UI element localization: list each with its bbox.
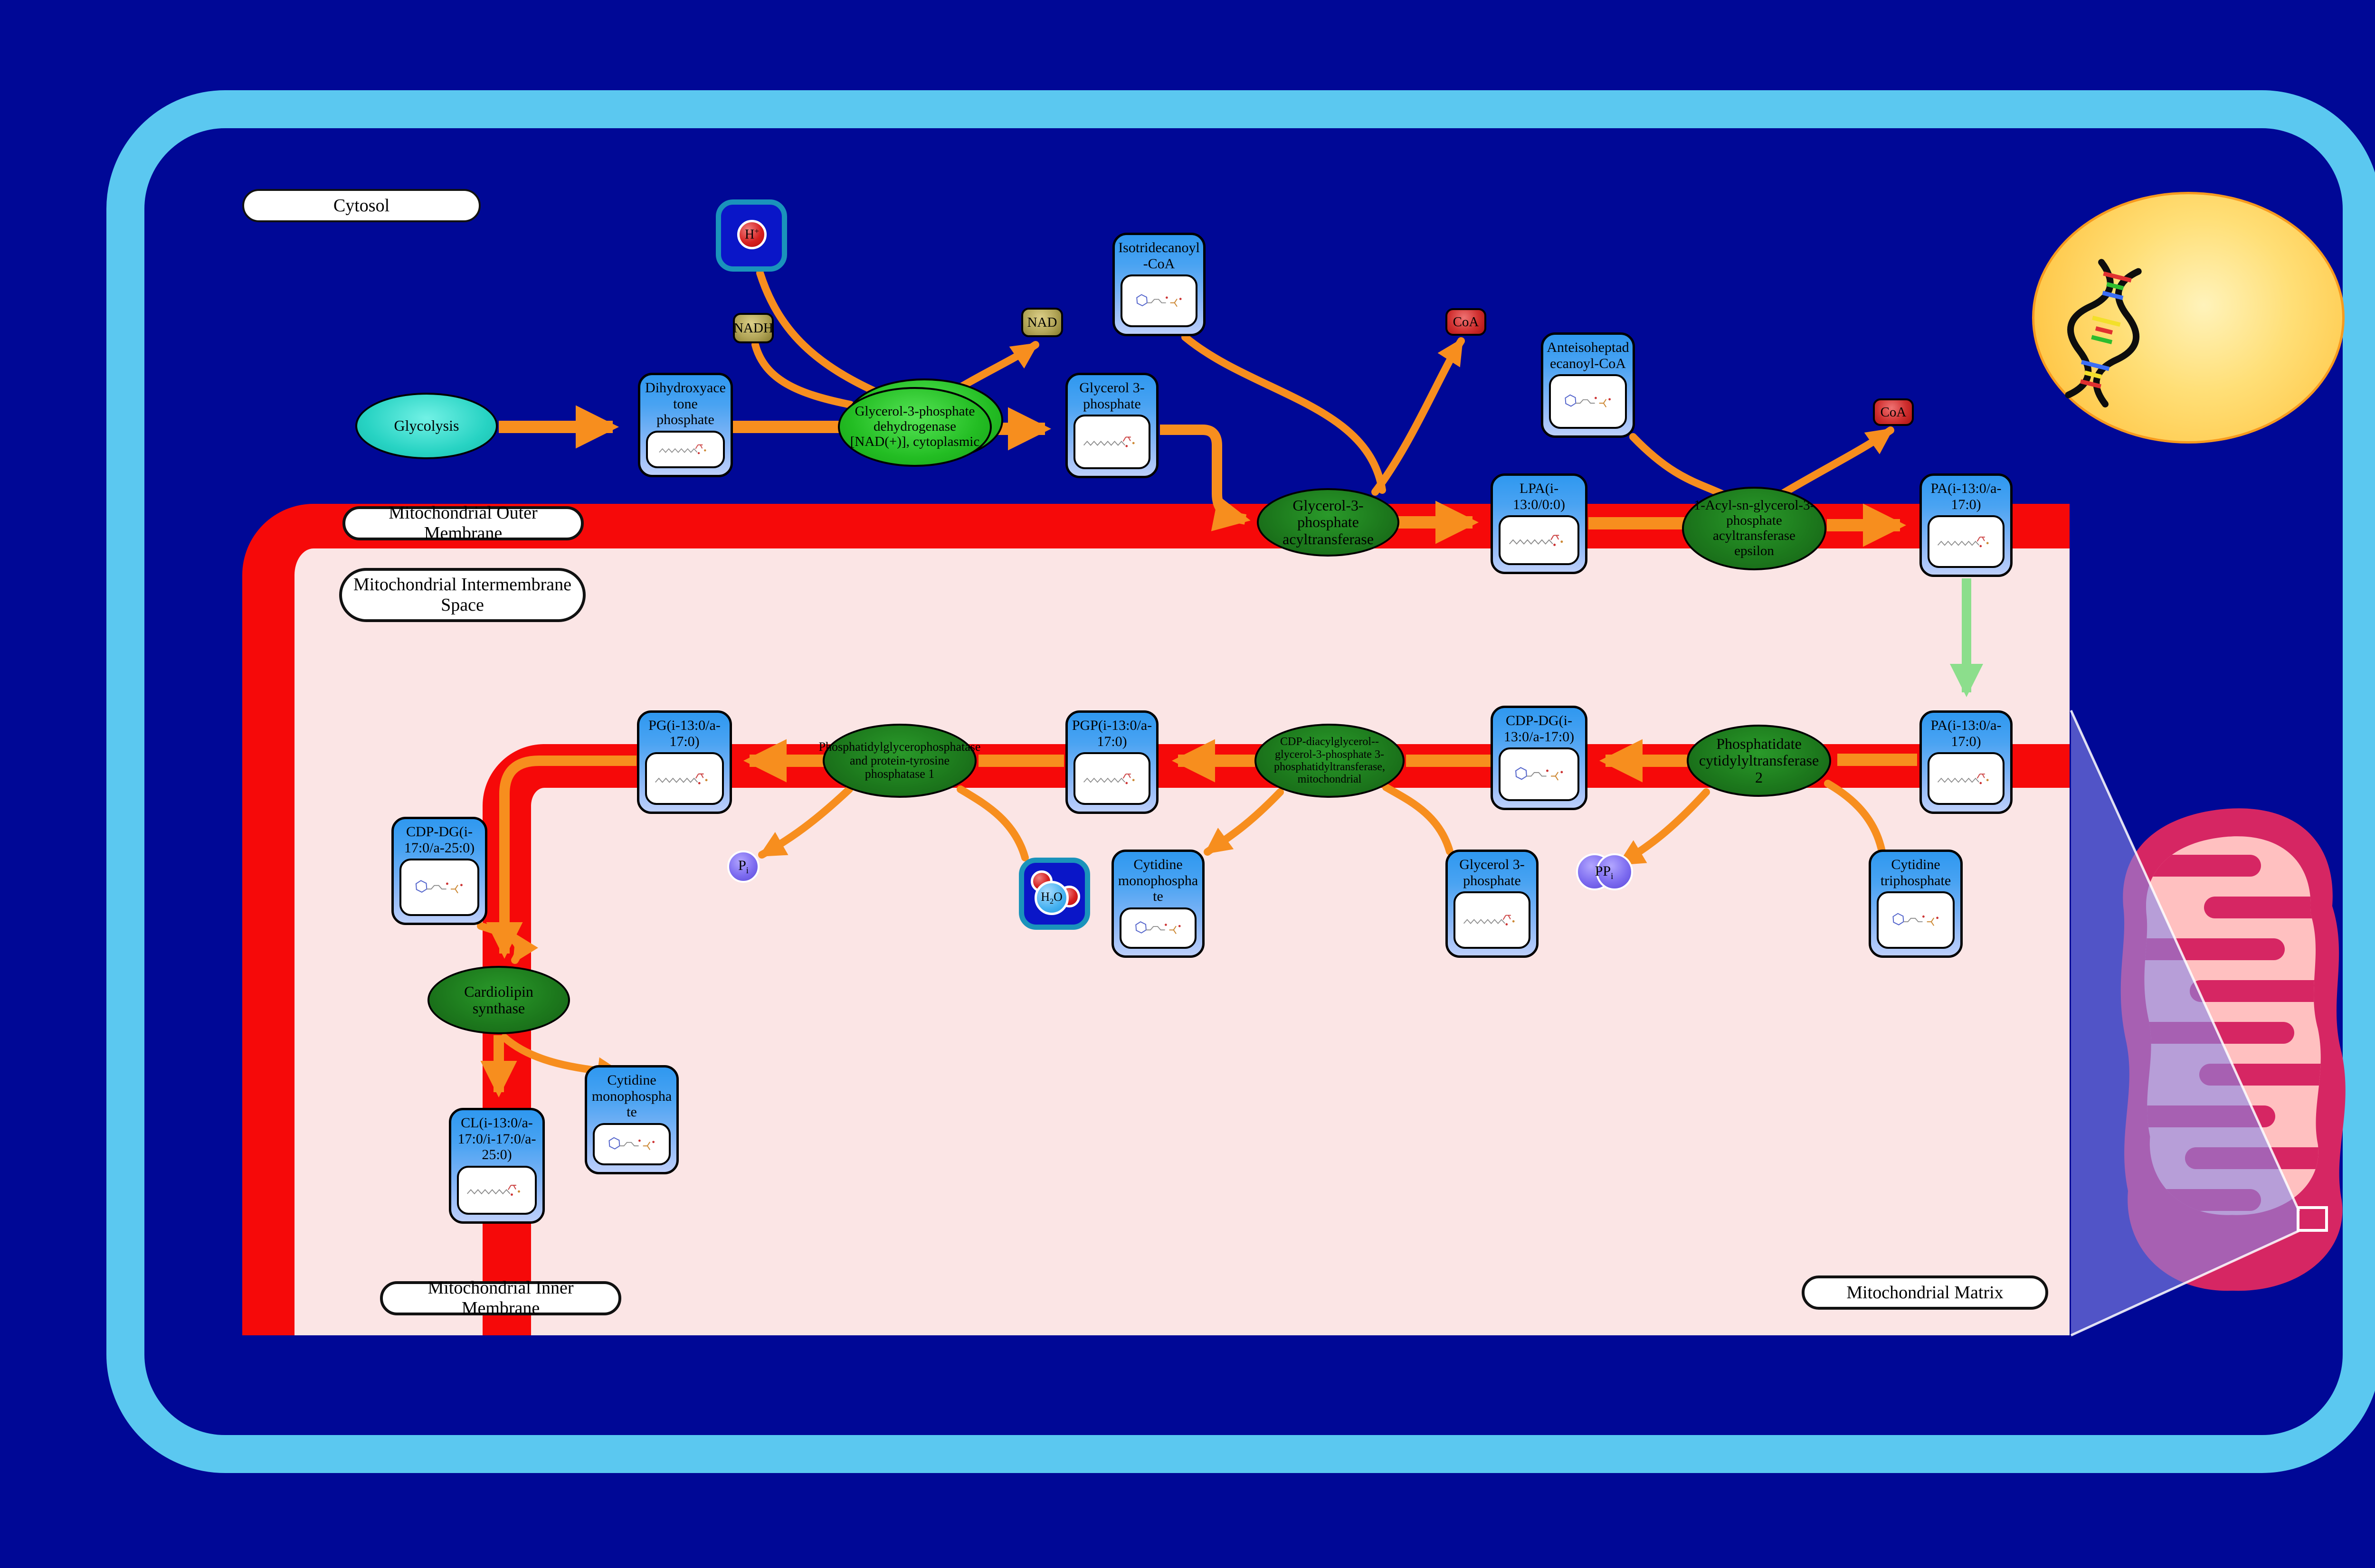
metabolite-cmp-left-structure: [593, 1123, 671, 1165]
label-matrix-text: Mitochondrial Matrix: [1846, 1283, 2003, 1303]
label-cytosol-text: Cytosol: [333, 196, 389, 216]
h-plus-sup: +: [754, 227, 759, 236]
pi-sub: i: [746, 866, 749, 876]
label-matrix: Mitochondrial Matrix: [1802, 1275, 2048, 1310]
node-glycolysis-label: Glycolysis: [394, 417, 459, 434]
metabolite-cdp-dg-left[interactable]: CDP-DG(i-17:0/a-25:0): [391, 817, 487, 925]
metabolite-cmp-mid-title: Cytidine monophosphate: [1114, 852, 1202, 907]
label-outer-membrane: Mitochondrial Outer Membrane: [342, 506, 584, 540]
cofactor-coa-2-label: CoA: [1881, 405, 1907, 420]
h2o-sub: 2: [1050, 897, 1054, 906]
cofactor-nad-label: NAD: [1027, 315, 1057, 331]
ppi-sub: i: [1611, 871, 1613, 881]
pathway-diagram: Cytosol Mitochondrial Outer Membrane Mit…: [0, 0, 2375, 1568]
enzyme-glycerol-3-phosphate-acyltransferase[interactable]: Glycerol-3-phosphate acyltransferase: [1257, 488, 1399, 557]
metabolite-pgp[interactable]: PGP(i-13:0/a-17:0): [1065, 710, 1159, 814]
metabolite-cmp-left-title: Cytidine monophosphate: [587, 1067, 676, 1122]
enzyme-gpd-label: Glycerol-3-phosphate dehydrogenase [NAD(…: [847, 404, 982, 450]
metabolite-g3p-matrix-structure: [1453, 891, 1530, 949]
metabolite-cmp-left[interactable]: Cytidine monophosphate: [585, 1065, 679, 1174]
metabolite-pa-inner-title: PA(i-13:0/a-17:0): [1922, 713, 2010, 751]
ppi-base: PP: [1595, 863, 1611, 879]
metabolite-pgp-structure: [1073, 752, 1150, 805]
h2o-o: O: [1054, 890, 1063, 904]
metabolite-pa-inner-structure: [1928, 752, 2004, 805]
label-outer-membrane-text: Mitochondrial Outer Membrane: [352, 503, 574, 543]
metabolite-pa-outer[interactable]: PA(i-13:0/a-17:0): [1919, 473, 2013, 577]
node-glycolysis[interactable]: Glycolysis: [355, 393, 498, 459]
metabolite-ctp[interactable]: Cytidine triphosphate: [1869, 850, 1963, 958]
metabolite-g3p-cytosol-title: Glycerol 3-phosphate: [1068, 375, 1156, 414]
nucleus: [2032, 192, 2345, 444]
metabolite-dhap-structure: [646, 431, 725, 468]
metabolite-cmp-mid-structure: [1120, 907, 1197, 949]
metabolite-pg-title: PG(i-13:0/a-17:0): [639, 713, 730, 751]
metabolite-lpa[interactable]: LPA(i-13:0/0:0): [1491, 473, 1587, 574]
cofactor-nadh[interactable]: NADH: [733, 313, 774, 343]
metabolite-anteisoheptadecanoyl-coa-title: Anteisoheptadecanoyl-CoA: [1543, 335, 1633, 373]
cofactor-coa-1-label: CoA: [1453, 314, 1479, 330]
metabolite-pg-structure: [645, 752, 724, 805]
metabolite-g3p-cytosol-structure: [1073, 415, 1150, 469]
pi-base: P: [738, 858, 746, 873]
label-inner-membrane-text: Mitochondrial Inner Membrane: [389, 1278, 612, 1318]
label-intermembrane-space: Mitochondrial Intermembrane Space: [339, 568, 586, 622]
metabolite-g3p-cytosol[interactable]: Glycerol 3-phosphate: [1065, 373, 1159, 478]
metabolite-lpa-structure: [1499, 515, 1579, 565]
metabolite-cmp-mid[interactable]: Cytidine monophosphate: [1111, 850, 1205, 958]
metabolite-cdp-dg-left-structure: [399, 859, 479, 916]
cofactor-ppi[interactable]: PPi: [1576, 853, 1632, 891]
label-cytosol: Cytosol: [242, 189, 481, 222]
metabolite-pgp-title: PGP(i-13:0/a-17:0): [1068, 713, 1156, 751]
metabolite-anteisoheptadecanoyl-coa-structure: [1549, 374, 1627, 429]
metabolite-isotridecanoyl-coa-title: Isotridecanoyl-CoA: [1115, 235, 1203, 274]
metabolite-g3p-matrix-title: Glycerol 3-phosphate: [1448, 852, 1536, 890]
metabolite-g3p-matrix[interactable]: Glycerol 3-phosphate: [1445, 850, 1539, 958]
metabolite-dhap[interactable]: Dihydroxyacetone phosphate: [638, 373, 733, 477]
enzyme-cdp-diacylglycerol-glycerol-3-phosphate-phosphatidyltransferase[interactable]: CDP-diacylglycerol--glycerol-3-phosphate…: [1254, 724, 1405, 798]
metabolite-dhap-title: Dihydroxyacetone phosphate: [640, 375, 731, 430]
cofactor-pi[interactable]: Pi: [727, 850, 760, 883]
metabolite-cardiolipin[interactable]: CL(i-13:0/a-17:0/i-17:0/a-25:0): [449, 1108, 545, 1224]
enzyme-phosphatidylglycerophosphatase[interactable]: Phosphatidylglycerophosphatase and prote…: [823, 724, 977, 798]
cofactor-coa-2[interactable]: CoA: [1873, 398, 1914, 426]
metabolite-cdp-dg-inner-title: CDP-DG(i-13:0/a-17:0): [1493, 708, 1585, 746]
h2o-molecule-icon: H2O: [1035, 881, 1069, 915]
metabolite-isotridecanoyl-coa-structure: [1121, 274, 1197, 327]
enzyme-gpat-label: Glycerol-3-phosphate acyltransferase: [1266, 497, 1390, 548]
metabolite-lpa-title: LPA(i-13:0/0:0): [1493, 476, 1585, 514]
enzyme-phosphatidate-cytidylyltransferase-2[interactable]: Phosphatidate cytidylyltransferase 2: [1687, 725, 1831, 797]
metabolite-cdp-dg-inner[interactable]: CDP-DG(i-13:0/a-17:0): [1491, 706, 1587, 810]
metabolite-cardiolipin-structure: [457, 1166, 537, 1215]
enzyme-1-acyl-sn-glycerol-3-phosphate-acyltransferase-epsilon[interactable]: 1-Acyl-sn-glycerol-3-phosphate acyltrans…: [1682, 487, 1826, 570]
metabolite-ctp-title: Cytidine triphosphate: [1871, 852, 1960, 890]
enzyme-agpat-label: 1-Acyl-sn-glycerol-3-phosphate acyltrans…: [1691, 498, 1817, 559]
metabolite-pa-outer-structure: [1928, 515, 2004, 568]
cofactor-coa-1[interactable]: CoA: [1445, 308, 1486, 336]
enzyme-cds-label: Phosphatidate cytidylyltransferase 2: [1696, 736, 1822, 786]
h2o-h: H: [1041, 890, 1050, 904]
metabolite-cdp-dg-left-title: CDP-DG(i-17:0/a-25:0): [394, 819, 485, 858]
metabolite-pa-outer-title: PA(i-13:0/a-17:0): [1922, 476, 2010, 514]
h-plus-atom-icon: H+: [737, 220, 767, 249]
cofactor-h2o[interactable]: H2O: [1019, 858, 1090, 930]
metabolite-cdp-dg-inner-structure: [1499, 747, 1579, 801]
metabolite-isotridecanoyl-coa[interactable]: Isotridecanoyl-CoA: [1112, 233, 1206, 336]
metabolite-pa-inner[interactable]: PA(i-13:0/a-17:0): [1919, 710, 2013, 814]
cofactor-h-plus[interactable]: H+: [716, 199, 787, 272]
metabolite-anteisoheptadecanoyl-coa[interactable]: Anteisoheptadecanoyl-CoA: [1541, 332, 1635, 438]
cofactor-nadh-label: NADH: [733, 321, 773, 336]
enzyme-glycerol-3-phosphate-dehydrogenase[interactable]: Glycerol-3-phosphate dehydrogenase [NAD(…: [838, 387, 992, 467]
enzyme-pgps-label: CDP-diacylglycerol--glycerol-3-phosphate…: [1264, 736, 1395, 786]
cofactor-nad[interactable]: NAD: [1021, 308, 1063, 337]
enzyme-ptpmt-label: Phosphatidylglycerophosphatase and prote…: [819, 740, 981, 781]
label-inner-membrane: Mitochondrial Inner Membrane: [380, 1281, 621, 1315]
metabolite-pg[interactable]: PG(i-13:0/a-17:0): [637, 710, 732, 814]
metabolite-ctp-structure: [1877, 891, 1955, 949]
enzyme-cardiolipin-synthase[interactable]: Cardiolipin synthase: [427, 966, 570, 1034]
h-plus-base: H: [745, 227, 754, 242]
enzyme-crls-label: Cardiolipin synthase: [437, 983, 560, 1017]
metabolite-cardiolipin-title: CL(i-13:0/a-17:0/i-17:0/a-25:0): [451, 1110, 542, 1165]
label-intermembrane-space-text: Mitochondrial Intermembrane Space: [349, 575, 576, 615]
inner-membrane-band: [483, 744, 2070, 1335]
